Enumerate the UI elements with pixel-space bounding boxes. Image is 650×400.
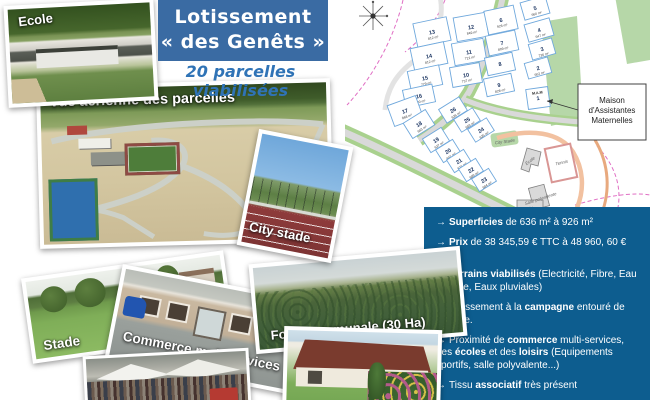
- blue-car: [123, 296, 148, 319]
- title-line2: « des Genêts »: [158, 31, 328, 53]
- tree: [38, 284, 69, 314]
- parcel: 13812 m²: [413, 17, 451, 48]
- aerial-school-building: [78, 138, 110, 150]
- photo-inauguration-crowd: [83, 348, 252, 400]
- aerial-house: [67, 126, 87, 136]
- title-line1: Lotissement: [158, 6, 328, 28]
- parcel: 14812 m²: [410, 42, 448, 71]
- infobox-list: →Superficies de 636 m² à 926 m²→Prix de …: [436, 217, 642, 393]
- info-item: →Prix de 38 345,59 € TTC à 48 960, 60 € …: [436, 237, 642, 263]
- shop-window: [230, 315, 250, 334]
- aerial-tennis-court: [48, 178, 98, 241]
- parcel: 5660 m²: [520, 0, 550, 20]
- info-item: →Superficies de 636 m² à 926 m²: [436, 217, 642, 230]
- parcel: M.A.M1: [526, 87, 551, 110]
- stade-photo-label: Stade: [43, 333, 81, 353]
- photo-city-stade: City stade: [237, 129, 354, 263]
- house-window: [308, 370, 322, 384]
- title-box: Lotissement « des Genêts »: [158, 0, 328, 61]
- flyer-page: 13812 m²14812 m²15779 m²16690 m²17868 m²…: [0, 0, 650, 400]
- red-ribbon-table: [209, 388, 238, 400]
- arrow-icon: →: [436, 217, 446, 228]
- parcel: 12849 m²: [453, 12, 489, 41]
- ecole-photo-label: Ecole: [17, 10, 53, 29]
- parcel-map: 13812 m²14812 m²15779 m²16690 m²17868 m²…: [345, 0, 650, 212]
- aerial-sports-field: [124, 142, 179, 176]
- school-building: [35, 45, 118, 68]
- info-item: →Proximité de commerce multi-services, d…: [436, 335, 642, 373]
- photo-ecole: Ecole: [3, 0, 158, 108]
- info-item: →Tissu associatif très présent: [436, 380, 642, 393]
- arrow-icon: →: [436, 237, 446, 248]
- garden-bush: [367, 362, 386, 399]
- tree: [73, 276, 108, 310]
- parcel: 9828 m²: [483, 73, 514, 96]
- info-item: →Terrains viabilisés (Electricité, Fibre…: [436, 269, 642, 295]
- aerial-school-roof: [90, 151, 128, 166]
- compass-icon: [359, 1, 388, 30]
- subtitle: 20 parcelles viabilisées: [143, 62, 338, 100]
- info-item: →Lotissement à la campagne entouré de ve…: [436, 302, 642, 328]
- school-path: [11, 77, 60, 104]
- photo-maison-jardin: [282, 326, 442, 400]
- shop-window: [167, 303, 187, 322]
- shop-door: [193, 306, 227, 341]
